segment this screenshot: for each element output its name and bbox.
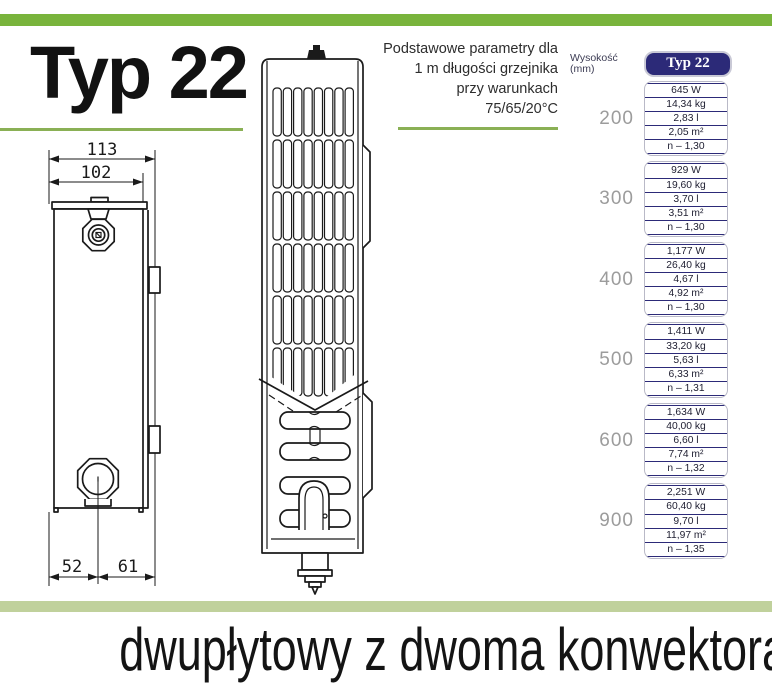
air-vent-valve: [307, 45, 326, 59]
value-power: 1,634 W: [645, 405, 727, 419]
dim-61-label: 61: [118, 557, 138, 577]
value-area: 2,05 m²: [645, 125, 727, 139]
value-weight: 60,40 kg: [645, 499, 727, 513]
parameters-table: Wysokość (mm) Typ 22 200 645 W 14,34 kg …: [570, 50, 738, 564]
value-weight: 14,34 kg: [645, 97, 727, 111]
value-exponent: n – 1,35: [645, 542, 727, 557]
value-power: 2,251 W: [645, 485, 727, 499]
value-power: 929 W: [645, 163, 727, 177]
spec-sheet-page: Typ 22 Podstawowe parametry dla 1 m dług…: [0, 0, 772, 699]
values-box: 1,634 W 40,00 kg 6,60 l 7,74 m² n – 1,32: [644, 403, 728, 478]
front-view-technical-drawing: [243, 38, 393, 608]
value-power: 1,411 W: [645, 324, 727, 338]
height-label: 200: [570, 108, 644, 130]
type-badge: Typ 22: [644, 51, 732, 77]
value-exponent: n – 1,30: [645, 220, 727, 235]
values-box: 645 W 14,34 kg 2,83 l 2,05 m² n – 1,30: [644, 81, 728, 156]
value-volume: 9,70 l: [645, 514, 727, 528]
value-power: 1,177 W: [645, 244, 727, 258]
value-weight: 33,20 kg: [645, 339, 727, 353]
height-label: 900: [570, 510, 644, 532]
top-accent-bar: [0, 14, 772, 26]
value-exponent: n – 1,32: [645, 461, 727, 476]
height-label: 600: [570, 430, 644, 452]
value-weight: 19,60 kg: [645, 178, 727, 192]
table-row-group-200: 200 645 W 14,34 kg 2,83 l 2,05 m² n – 1,…: [570, 81, 738, 156]
side-bracket-upper: [363, 145, 370, 248]
height-column-header: Wysokość (mm): [570, 53, 644, 75]
values-box: 1,177 W 26,40 kg 4,67 l 4,92 m² n – 1,30: [644, 242, 728, 317]
value-exponent: n – 1,30: [645, 139, 727, 154]
table-row-group-600: 600 1,634 W 40,00 kg 6,60 l 7,74 m² n – …: [570, 403, 738, 478]
height-label: 400: [570, 269, 644, 291]
value-weight: 26,40 kg: [645, 258, 727, 272]
value-area: 11,97 m²: [645, 528, 727, 542]
value-area: 6,33 m²: [645, 367, 727, 381]
values-box: 1,411 W 33,20 kg 5,63 l 6,33 m² n – 1,31: [644, 322, 728, 397]
product-description-text: dwupłytowy z dwoma konwektorami: [119, 614, 772, 686]
values-box: 2,251 W 60,40 kg 9,70 l 11,97 m² n – 1,3…: [644, 483, 728, 558]
wall-bracket-lower: [149, 426, 160, 453]
table-row-group-400: 400 1,177 W 26,40 kg 4,67 l 4,92 m² n – …: [570, 242, 738, 317]
bottom-connection-valve: [298, 553, 332, 594]
side-bracket-lower: [363, 393, 372, 498]
value-exponent: n – 1,31: [645, 381, 727, 396]
value-volume: 4,67 l: [645, 272, 727, 286]
value-volume: 2,83 l: [645, 111, 727, 125]
value-volume: 5,63 l: [645, 353, 727, 367]
table-row-group-900: 900 2,251 W 60,40 kg 9,70 l 11,97 m² n –…: [570, 483, 738, 558]
value-area: 7,74 m²: [645, 447, 727, 461]
wall-bracket-upper: [149, 267, 160, 293]
value-weight: 40,00 kg: [645, 419, 727, 433]
title-underline: [0, 128, 243, 131]
page-title: Typ 22: [30, 34, 247, 112]
value-area: 3,51 m²: [645, 206, 727, 220]
water-channel-arch: [299, 481, 329, 530]
product-description: dwupłytowy z dwoma konwektorami: [0, 614, 772, 686]
table-row-group-500: 500 1,411 W 33,20 kg 5,63 l 6,33 m² n – …: [570, 322, 738, 397]
side-view-technical-drawing: 113 102: [25, 140, 200, 610]
dim-102-label: 102: [81, 163, 112, 183]
value-volume: 3,70 l: [645, 192, 727, 206]
bottom-accent-bar: [0, 601, 772, 612]
value-exponent: n – 1,30: [645, 300, 727, 315]
dim-52-label: 52: [62, 557, 82, 577]
note-underline: [398, 127, 558, 130]
height-label: 500: [570, 349, 644, 371]
value-power: 645 W: [645, 83, 727, 97]
values-box: 929 W 19,60 kg 3,70 l 3,51 m² n – 1,30: [644, 161, 728, 236]
value-area: 4,92 m²: [645, 286, 727, 300]
table-header: Wysokość (mm) Typ 22: [570, 50, 738, 77]
dim-113-label: 113: [87, 140, 118, 160]
height-label: 300: [570, 188, 644, 210]
value-volume: 6,60 l: [645, 433, 727, 447]
table-row-group-300: 300 929 W 19,60 kg 3,70 l 3,51 m² n – 1,…: [570, 161, 738, 236]
